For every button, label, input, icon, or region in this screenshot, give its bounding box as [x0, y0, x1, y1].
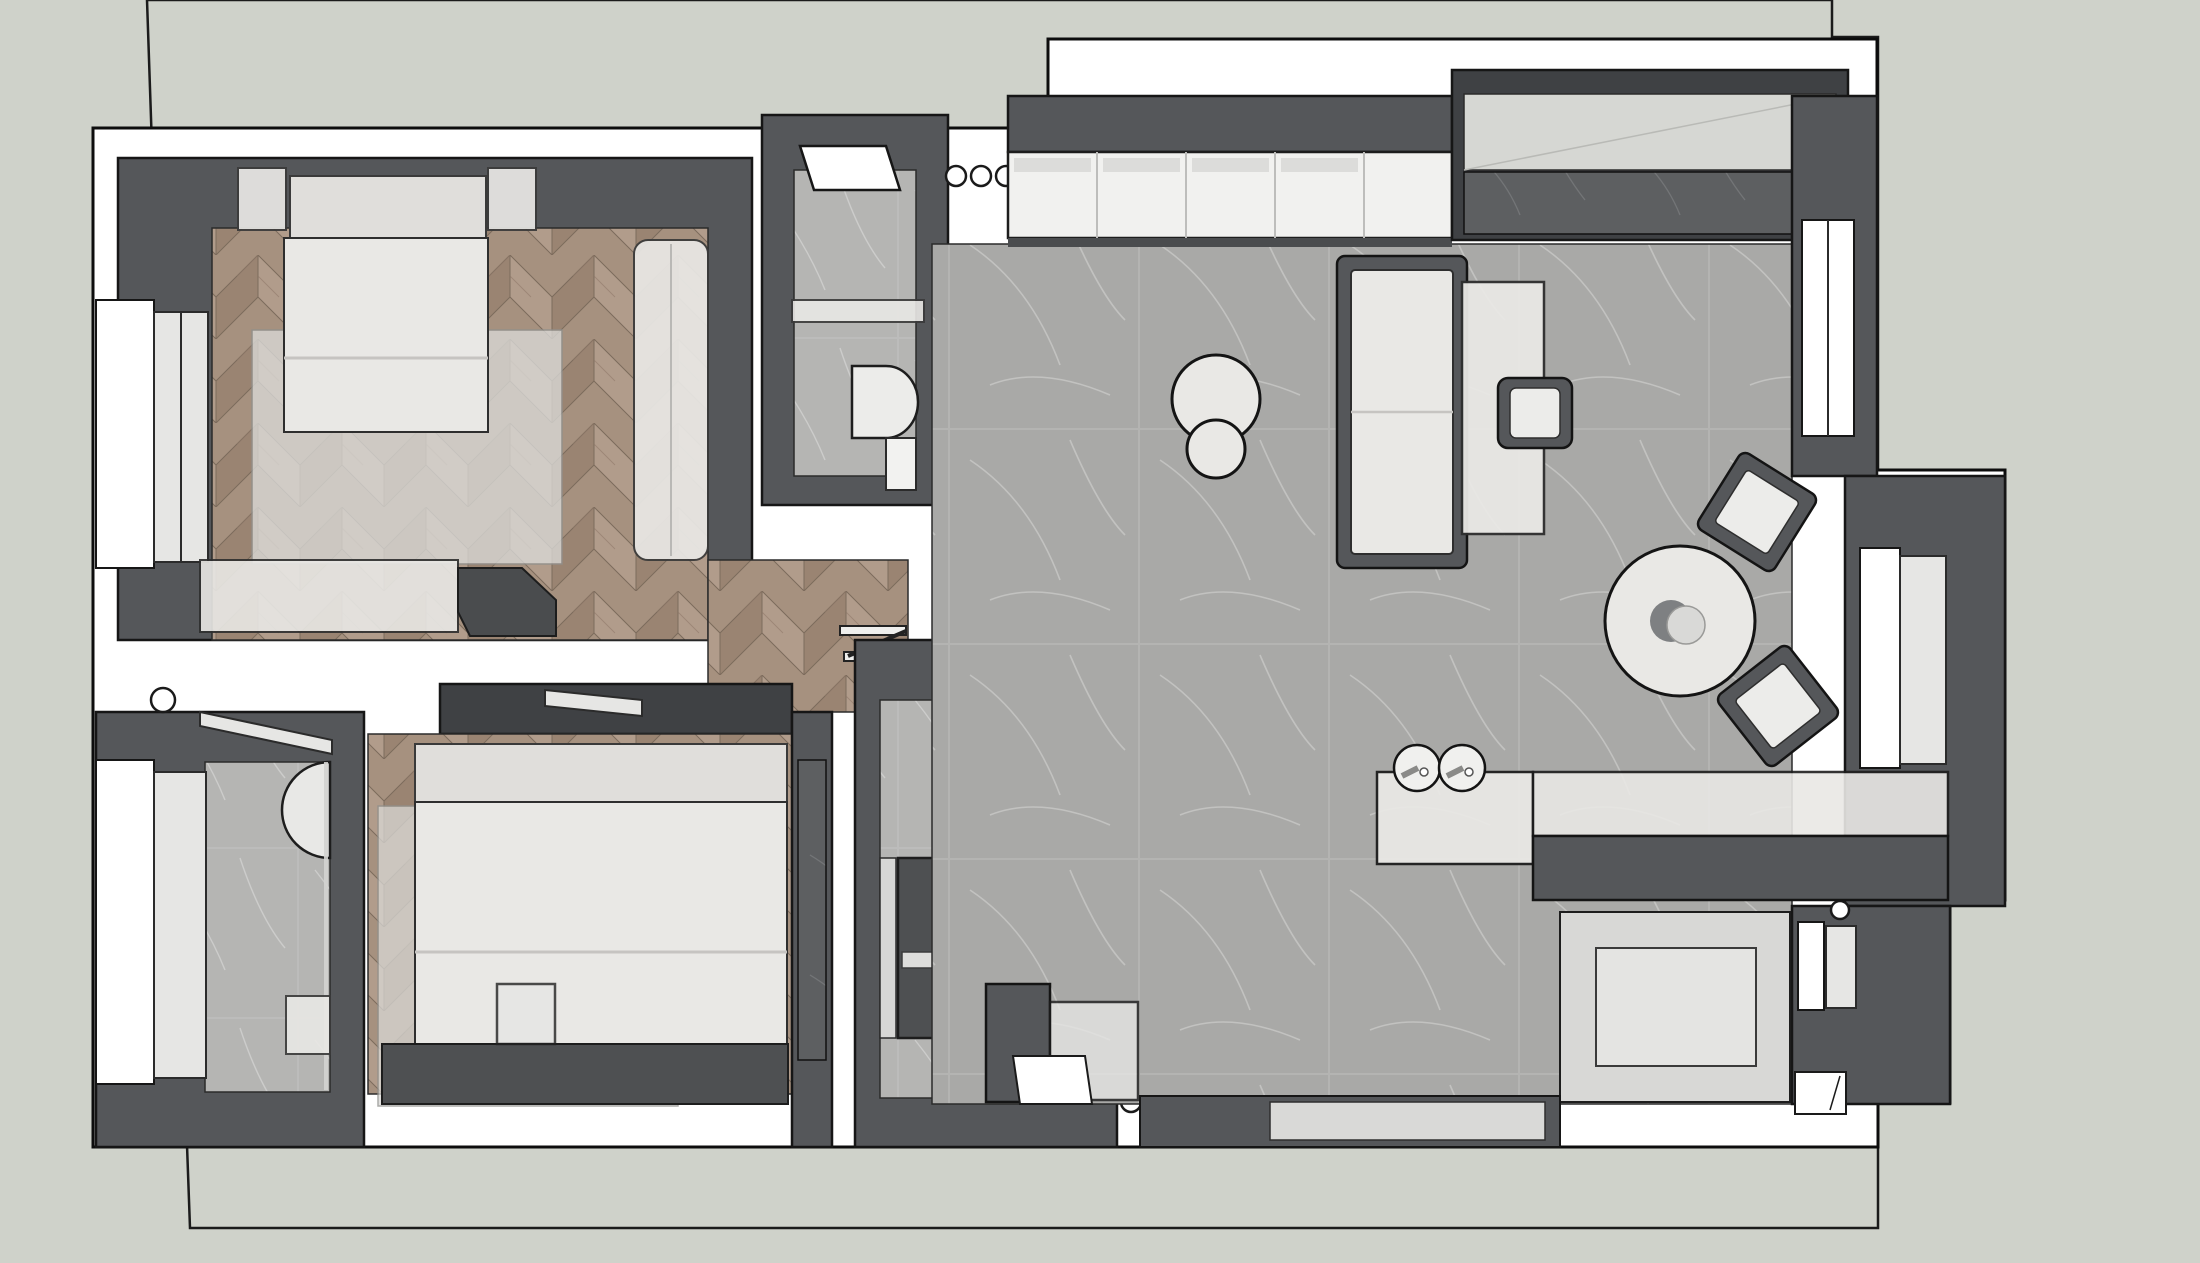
shower-room-bench[interactable]	[286, 996, 330, 1054]
bedroom2-low-console[interactable]	[382, 1044, 788, 1104]
entry-step	[1596, 948, 1756, 1066]
shower-door-knob	[151, 688, 175, 712]
room-second-bedroom	[368, 684, 832, 1147]
bedroom2-glass-stool[interactable]	[497, 984, 555, 1044]
bedroom1-window[interactable]	[96, 300, 208, 568]
room-living	[932, 70, 2005, 1147]
bathroom1-vanity[interactable]	[886, 438, 916, 490]
kitchen-island[interactable]	[986, 984, 1138, 1104]
bed1-pillows	[290, 176, 486, 238]
bed1-duvet	[284, 238, 488, 432]
round-dining-table[interactable]	[1605, 546, 1755, 696]
bedroom1-bench[interactable]	[200, 560, 458, 632]
floor-plan-render	[0, 0, 2200, 1263]
entry-bottom-step	[1270, 1102, 1545, 1140]
bed2-pillows	[415, 744, 787, 802]
entry-door[interactable]	[1795, 1072, 1846, 1114]
living-top-wall	[1008, 96, 1452, 152]
floor-mat	[1013, 1056, 1092, 1104]
feature-wall-marble-panel	[798, 760, 826, 1060]
room-master-bedroom	[96, 158, 752, 640]
decor-bowl-2	[1439, 745, 1485, 791]
kitchen-cabinets[interactable]	[1008, 152, 1452, 247]
cabinet-toe-kick	[1008, 238, 1452, 247]
bathroom1-shelf[interactable]	[792, 300, 924, 322]
nightstand-left[interactable]	[238, 168, 286, 230]
nightstand-right[interactable]	[488, 168, 536, 230]
decor-bowl-1	[1394, 745, 1440, 791]
bathroom1-skylight[interactable]	[800, 146, 900, 190]
right-window-2[interactable]	[1860, 548, 1946, 768]
sofa[interactable]	[1337, 256, 1467, 568]
right-window-3[interactable]	[1798, 922, 1856, 1010]
bedroom1-bed[interactable]	[238, 168, 562, 564]
shower-room-window[interactable]	[96, 760, 206, 1084]
bathroom1-spotlights	[946, 166, 1016, 186]
wall-knob	[1831, 901, 1849, 919]
floor-plan-stage	[0, 0, 2200, 1263]
desk-chair[interactable]	[1498, 378, 1572, 448]
bathroom1-toilet[interactable]	[852, 366, 918, 438]
tall-closet[interactable]	[1452, 70, 1848, 240]
room-shower	[96, 688, 364, 1147]
